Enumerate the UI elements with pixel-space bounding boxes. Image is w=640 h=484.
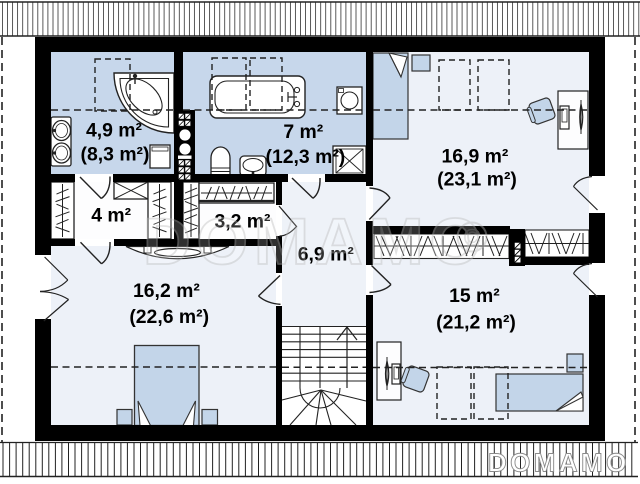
- svg-text:C: C: [464, 225, 480, 250]
- svg-text:16,9 m²: 16,9 m²: [441, 146, 508, 168]
- svg-text:(8,3 m²): (8,3 m²): [81, 144, 150, 166]
- svg-text:DOMAMO: DOMAMO: [143, 204, 487, 278]
- svg-text:(22,6 m²): (22,6 m²): [129, 306, 209, 328]
- svg-text:DOMAMO: DOMAMO: [488, 448, 630, 478]
- svg-text:4 m²: 4 m²: [91, 205, 131, 227]
- svg-text:15 m²: 15 m²: [449, 285, 500, 307]
- svg-text:(12,3 m²): (12,3 m²): [266, 146, 346, 168]
- svg-text:(23,1 m²): (23,1 m²): [437, 169, 517, 191]
- svg-text:16,2 m²: 16,2 m²: [133, 280, 200, 302]
- svg-text:7 m²: 7 m²: [283, 121, 323, 143]
- svg-text:4,9 m²: 4,9 m²: [86, 120, 143, 142]
- svg-text:(21,2 m²): (21,2 m²): [436, 312, 516, 334]
